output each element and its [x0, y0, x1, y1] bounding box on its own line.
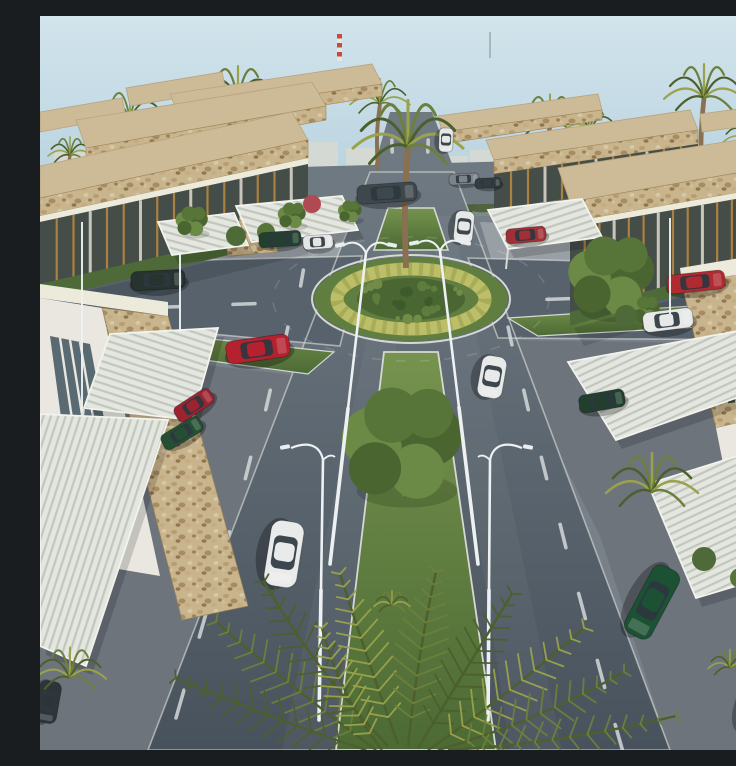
lane-dash [547, 299, 569, 300]
striped-chimney [337, 34, 342, 39]
car-hood-highlight [327, 236, 332, 246]
car-roof [273, 234, 285, 244]
frond-leaflet [477, 651, 503, 652]
shrub-tuft [424, 298, 432, 306]
bush [692, 547, 716, 571]
car-roof [593, 395, 608, 408]
car-roof [149, 274, 165, 286]
tree-foliage [573, 275, 610, 312]
shrub-tuft [456, 289, 462, 295]
bush [615, 305, 637, 327]
striped-chimney [337, 57, 342, 62]
tree-foliage [404, 389, 453, 438]
lane-dash [233, 304, 255, 305]
shrub-tuft [402, 314, 412, 324]
striped-chimney [337, 48, 342, 53]
frond-leaflet [583, 678, 584, 693]
car-roof [519, 230, 531, 240]
shrub-tuft [421, 306, 431, 316]
frond-leaflet [324, 696, 348, 697]
striped-chimney [337, 43, 342, 48]
car-hood-highlight [538, 228, 544, 239]
car-roof [659, 313, 674, 327]
car-roof [273, 541, 295, 562]
car-hood-highlight [405, 185, 414, 198]
shrub-tuft [413, 315, 421, 323]
frond-leaflet [463, 674, 493, 675]
frond-leaflet [270, 621, 288, 622]
shrub-tuft [395, 316, 399, 320]
car-hood-highlight [496, 179, 500, 186]
car-roof [313, 238, 322, 247]
car-hood-highlight [441, 147, 451, 151]
shrub-tuft [426, 285, 430, 289]
car-roof [376, 187, 394, 200]
bush [303, 195, 321, 213]
car-roof [483, 180, 491, 186]
tree-foliage [192, 207, 205, 220]
tree-foliage [646, 297, 657, 308]
tree-foliage [279, 215, 291, 227]
tree-foliage [178, 221, 192, 235]
palm-trunk [405, 147, 408, 268]
frond-leaflet [175, 670, 176, 678]
tree-foliage [292, 203, 303, 214]
shrub-tuft [417, 281, 427, 291]
shrub-tuft [453, 287, 457, 291]
frond-leaflet [191, 677, 192, 685]
aerial-render: Aerial render of a residential community [40, 16, 736, 750]
car-roof [442, 136, 451, 143]
car-roof [459, 176, 468, 183]
car-roof [246, 341, 266, 357]
frond-leaflet [345, 724, 364, 725]
shrub-tuft [372, 293, 380, 301]
tree-foliage [612, 237, 647, 272]
shrub-tuft [372, 279, 382, 289]
car-hood-highlight [713, 273, 722, 287]
bush [226, 226, 246, 246]
frond-leaflet [456, 686, 485, 687]
car-roof [686, 276, 703, 289]
shrub-tuft [431, 286, 437, 292]
shrub-tuft [409, 289, 413, 293]
striped-chimney [337, 39, 342, 44]
striped-chimney [337, 52, 342, 57]
tree-foliage [349, 442, 401, 494]
frond-leaflet [470, 663, 499, 664]
light-pole-base [488, 590, 489, 720]
shrub-tuft [392, 300, 398, 306]
car-hood-highlight [292, 233, 299, 244]
tree-foliage [339, 211, 349, 221]
frond-leaflet [484, 639, 507, 640]
car-roof [41, 694, 56, 708]
car-roof [458, 221, 470, 231]
scene-svg [40, 16, 736, 750]
